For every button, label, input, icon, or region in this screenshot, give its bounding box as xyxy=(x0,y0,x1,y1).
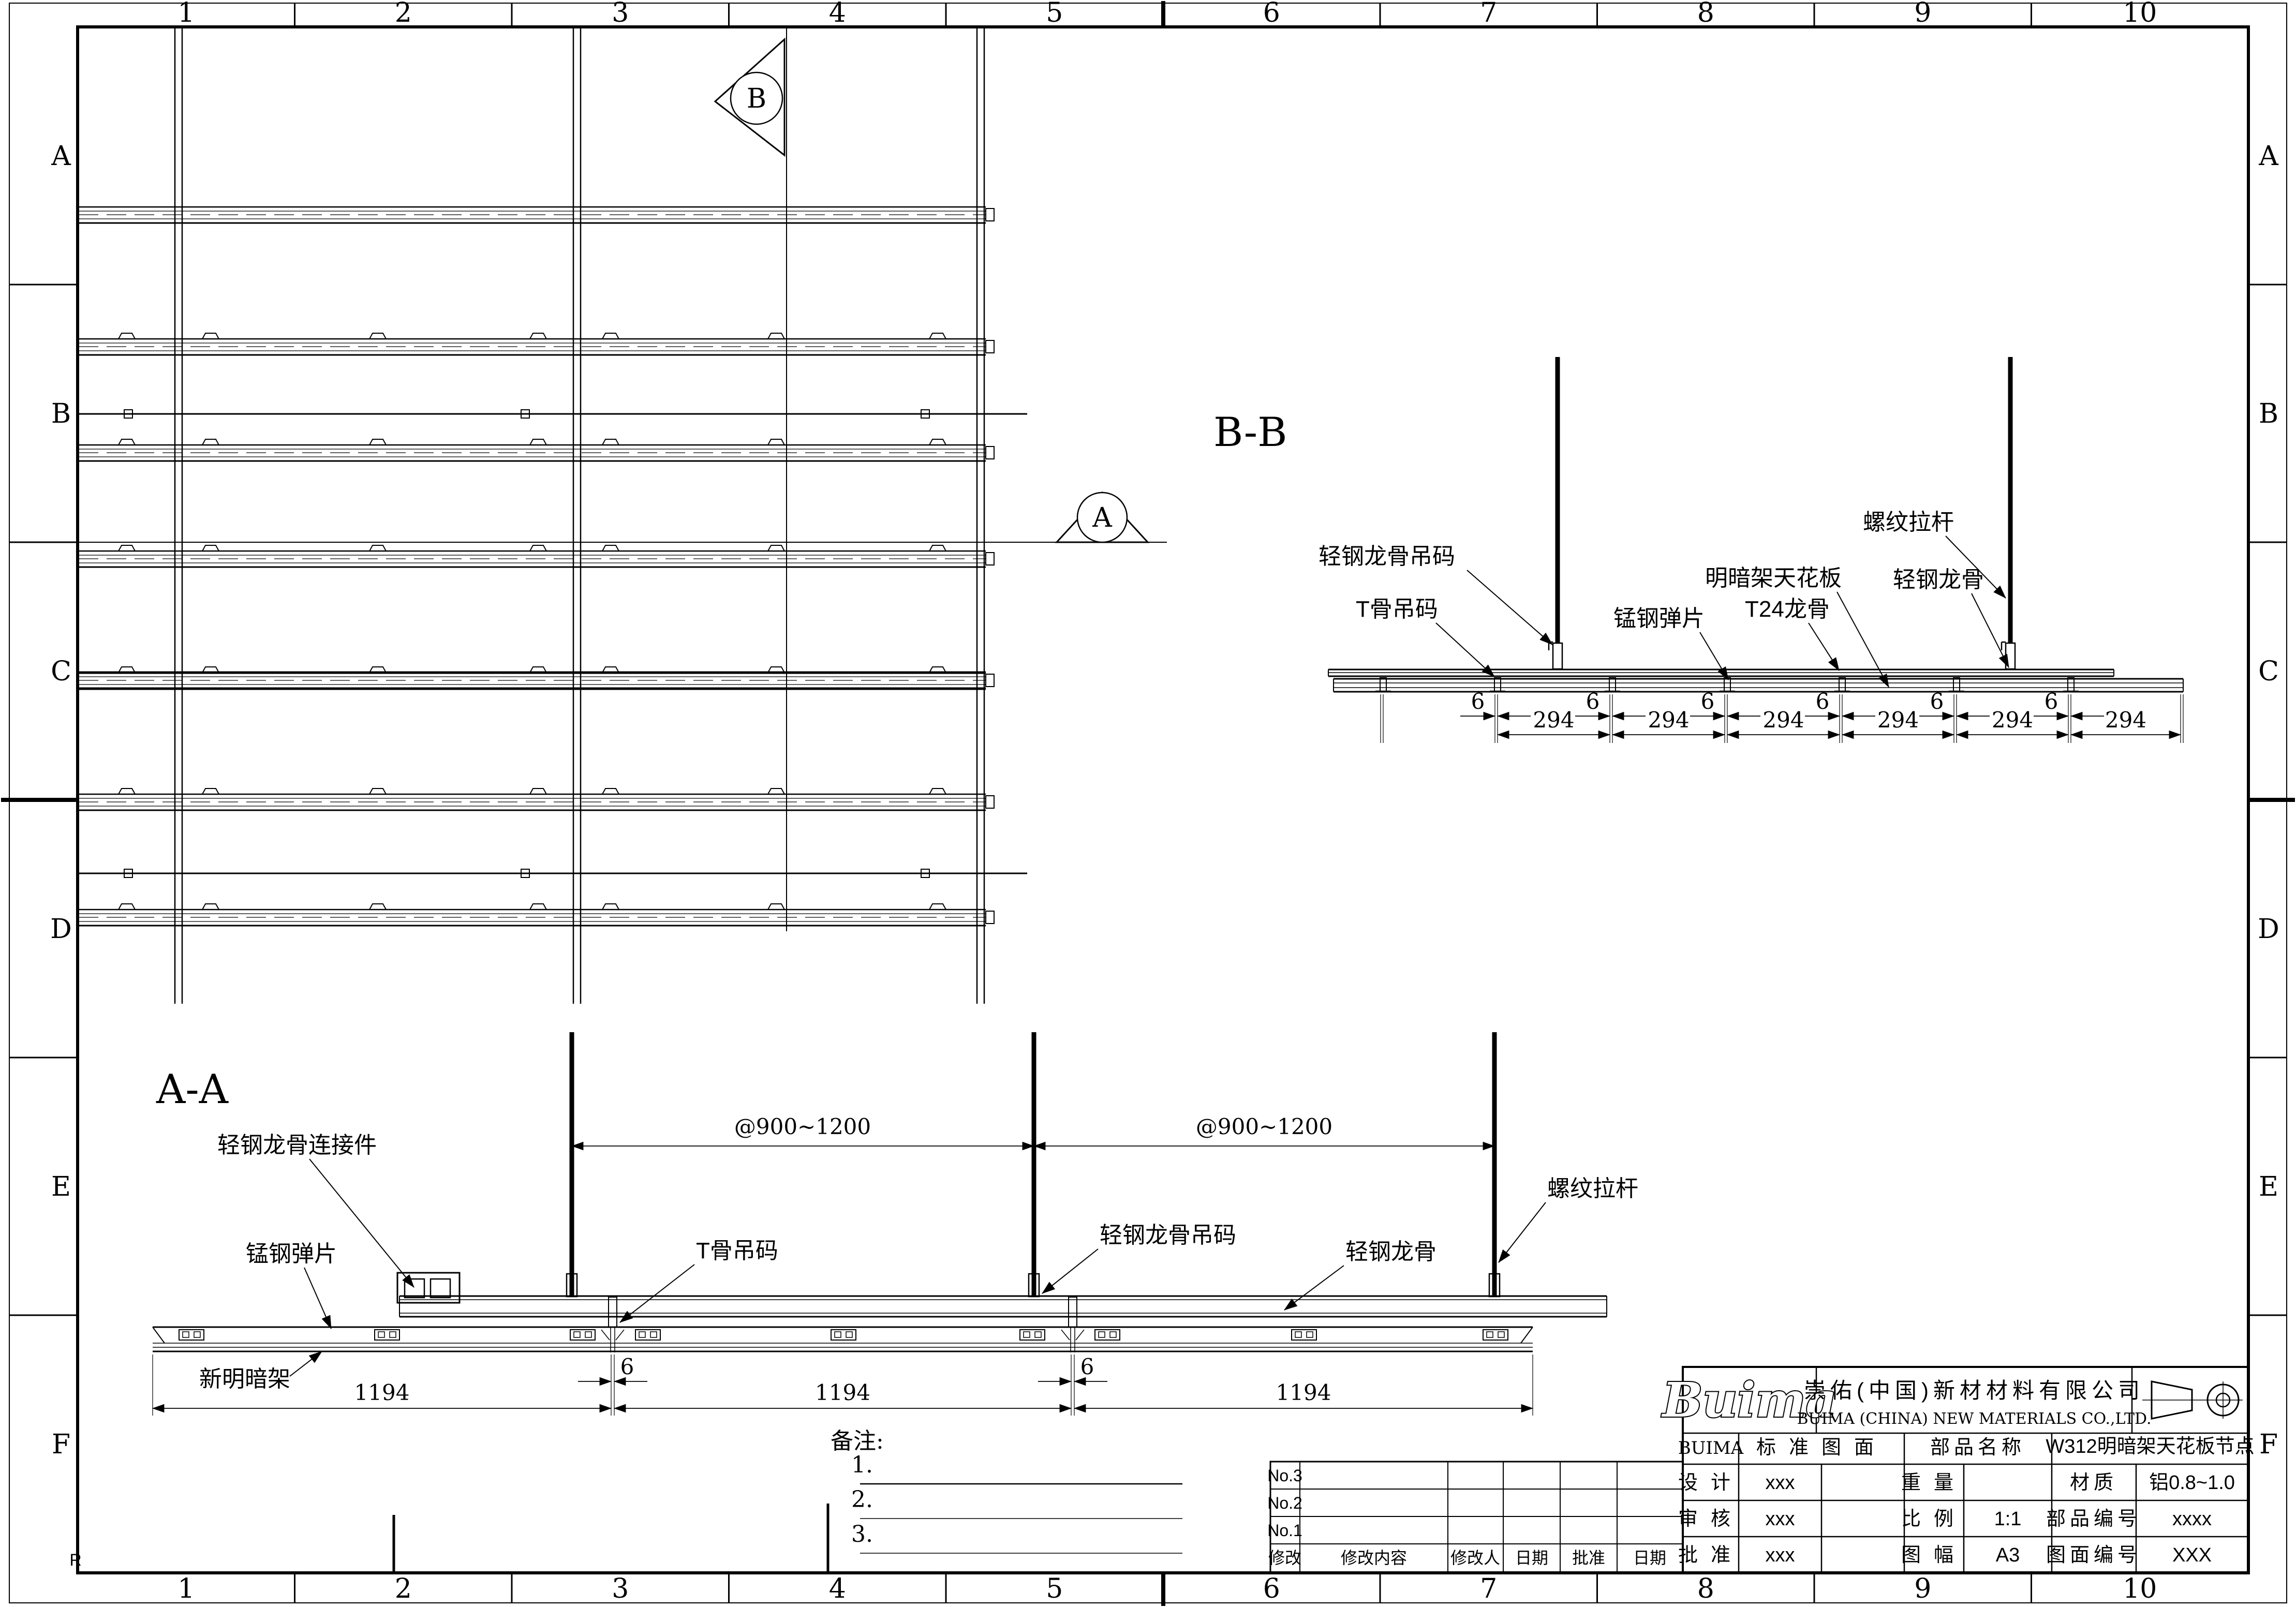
prop-label: 比例 xyxy=(1901,1508,1966,1530)
dim-gap-6: 6 xyxy=(1930,689,1944,714)
corner-mark: R xyxy=(69,1551,81,1569)
dim-module-294: 294 xyxy=(2105,707,2146,733)
zone-letter-left: F xyxy=(52,1429,70,1460)
zone-letter-right: C xyxy=(2258,656,2279,687)
component-label: 轻钢龙骨连接件 xyxy=(217,1133,377,1158)
prop-label: 重量 xyxy=(1901,1472,1966,1494)
row-value: xxx xyxy=(1766,1544,1795,1566)
zone-letter-right: E xyxy=(2259,1171,2278,1202)
dim-gap-6: 6 xyxy=(1701,689,1715,714)
component-label: T骨吊码 xyxy=(1356,597,1438,622)
component-label: 轻钢龙骨 xyxy=(1345,1239,1436,1264)
rev-header: 修改 xyxy=(1268,1549,1301,1567)
zone-number-bottom: 6 xyxy=(1263,1573,1280,1604)
part-name: W312明暗架天花板节点 xyxy=(2046,1436,2254,1457)
component-label: 轻钢龙骨吊码 xyxy=(1319,544,1455,569)
zone-number-bottom: 2 xyxy=(395,1573,412,1604)
dim-module-294: 294 xyxy=(1533,707,1574,733)
attr-value: XXX xyxy=(2172,1544,2212,1566)
rev-header: 修改人 xyxy=(1450,1549,1500,1567)
dim-gap-6: 6 xyxy=(1586,689,1600,714)
dim-panel-1194: 1194 xyxy=(1276,1380,1331,1405)
note-item: 1. xyxy=(851,1452,873,1478)
rev-header: 日期 xyxy=(1515,1549,1548,1567)
zone-number-top: 8 xyxy=(1697,0,1714,28)
zone-number-bottom: 9 xyxy=(1914,1573,1931,1604)
marker-b-letter: B xyxy=(747,83,766,114)
dim-gap-6: 6 xyxy=(1080,1354,1094,1379)
zone-number-bottom: 3 xyxy=(612,1573,629,1604)
rev-header: 批准 xyxy=(1572,1549,1605,1567)
zone-letter-right: A xyxy=(2258,141,2279,172)
dim-module-294: 294 xyxy=(1877,707,1919,733)
component-label: 锰钢弹片 xyxy=(1613,606,1705,631)
rev-row-label: No.3 xyxy=(1267,1466,1302,1485)
row-label: 批准 xyxy=(1678,1544,1743,1566)
row-value: xxx xyxy=(1766,1508,1795,1530)
doc-type: 标准图面 xyxy=(1756,1437,1887,1459)
dim-gap-6: 6 xyxy=(1471,689,1485,714)
dim-rod-spacing: @900~1200 xyxy=(734,1114,871,1139)
zone-letter-left: C xyxy=(51,656,71,687)
attr-value: 铝0.8~1.0 xyxy=(2149,1472,2235,1494)
zone-number-top: 2 xyxy=(395,0,412,28)
dim-panel-1194: 1194 xyxy=(815,1380,870,1405)
note-item: 2. xyxy=(851,1486,873,1513)
component-label: 螺纹拉杆 xyxy=(1863,510,1954,535)
component-label: T24龙骨 xyxy=(1745,597,1830,622)
rev-row-label: No.1 xyxy=(1267,1521,1302,1540)
zone-number-top: 3 xyxy=(612,0,629,28)
dim-rod-spacing: @900~1200 xyxy=(1196,1114,1332,1139)
row-label: 设计 xyxy=(1678,1472,1743,1494)
dim-panel-1194: 1194 xyxy=(354,1380,410,1405)
zone-letter-right: F xyxy=(2259,1429,2278,1460)
zone-number-bottom: 1 xyxy=(177,1573,195,1604)
zone-number-bottom: 7 xyxy=(1480,1573,1497,1604)
rev-header: 日期 xyxy=(1633,1549,1666,1567)
zone-number-bottom: 8 xyxy=(1697,1573,1714,1604)
zone-letter-left: D xyxy=(50,914,72,945)
brand-text: BUIMA xyxy=(1678,1438,1744,1459)
dim-module-294: 294 xyxy=(1992,707,2033,733)
rev-header: 修改内容 xyxy=(1341,1549,1407,1567)
marker-a-letter: A xyxy=(1092,502,1113,533)
prop-label: 图幅 xyxy=(1901,1544,1966,1566)
rev-row-label: No.2 xyxy=(1267,1494,1302,1512)
component-label: 轻钢龙骨吊码 xyxy=(1100,1223,1236,1248)
component-label: 锰钢弹片 xyxy=(246,1241,337,1267)
component-label: 明暗架天花板 xyxy=(1705,566,1842,591)
component-label: T骨吊码 xyxy=(696,1238,778,1263)
dim-gap-6: 6 xyxy=(620,1354,634,1379)
attr-label: 部品编号 xyxy=(2046,1508,2141,1530)
cad-drawing: 1122334455667788991010AABBCCDDEEFFRBAB-B… xyxy=(0,0,2296,1607)
row-label: 审核 xyxy=(1678,1508,1743,1530)
zone-number-top: 9 xyxy=(1914,0,1931,28)
zone-number-top: 4 xyxy=(829,0,846,28)
attr-label: 材质 xyxy=(2070,1472,2117,1494)
company-name-en: BUIMA (CHINA) NEW MATERIALS CO.,LTD. xyxy=(1797,1410,2151,1428)
section-aa-title: A-A xyxy=(156,1066,229,1113)
zone-letter-right: D xyxy=(2258,914,2279,945)
dim-module-294: 294 xyxy=(1762,707,1804,733)
zone-number-bottom: 4 xyxy=(829,1573,846,1604)
zone-number-top: 7 xyxy=(1480,0,1497,28)
zone-letter-left: E xyxy=(51,1171,71,1202)
zone-number-top: 6 xyxy=(1263,0,1280,28)
dim-module-294: 294 xyxy=(1648,707,1689,733)
dim-gap-6: 6 xyxy=(2045,689,2058,714)
row-value: xxx xyxy=(1766,1472,1795,1494)
zone-number-top: 1 xyxy=(177,0,195,28)
zone-number-bottom: 5 xyxy=(1046,1573,1063,1604)
page: { "sheet": { "zones_top": ["1","2","3","… xyxy=(0,0,2296,1607)
component-label: 螺纹拉杆 xyxy=(1547,1176,1638,1201)
zone-letter-left: B xyxy=(51,398,71,429)
notes-title: 备注: xyxy=(831,1428,884,1454)
zone-letter-right: B xyxy=(2259,398,2278,429)
component-label: 新明暗架 xyxy=(199,1366,290,1392)
section-bb-title: B-B xyxy=(1213,409,1287,456)
zone-number-top: 10 xyxy=(2123,0,2157,28)
part-name-label: 部品名称 xyxy=(1930,1437,2025,1459)
prop-value: 1:1 xyxy=(1994,1508,2022,1530)
prop-value: A3 xyxy=(1996,1544,2020,1566)
zone-number-top: 5 xyxy=(1046,0,1063,28)
zone-letter-left: A xyxy=(51,141,71,172)
note-item: 3. xyxy=(851,1521,873,1548)
zone-number-bottom: 10 xyxy=(2123,1573,2157,1604)
component-label: 轻钢龙骨 xyxy=(1893,567,1984,592)
dim-gap-6: 6 xyxy=(1816,689,1830,714)
company-name-cn: 崇佑(中国)新材材料有限公司 xyxy=(1804,1378,2144,1403)
attr-label: 图面编号 xyxy=(2046,1544,2141,1566)
attr-value: xxxx xyxy=(2172,1508,2212,1530)
